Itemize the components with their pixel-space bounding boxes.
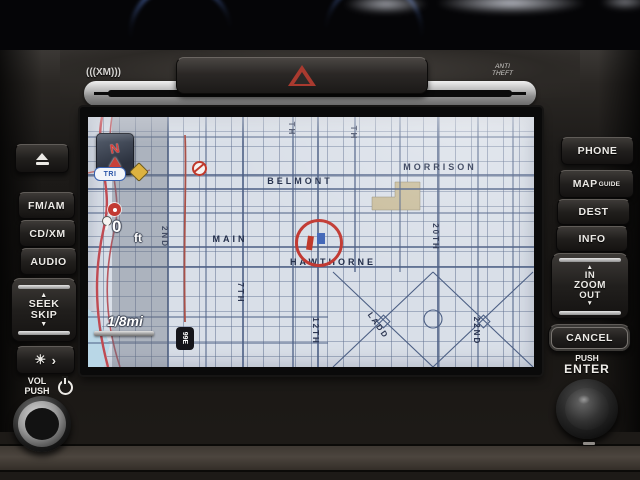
street-label-22nd: 22ND [472, 317, 481, 345]
sun-icon: ☀ [35, 352, 47, 368]
car-dashboard: (((XM))) ANTI THEFT FM/AM CD/XM AUDIO ▲ … [0, 0, 640, 480]
street-label-morrison: MORRISON [403, 162, 477, 172]
cancel-button[interactable]: CANCEL [548, 324, 631, 352]
phone-button[interactable]: PHONE [561, 137, 634, 165]
zoom-in-out-button[interactable]: ▲ IN ZOOM OUT ▼ [551, 253, 629, 319]
dashboard-trim-strip [0, 444, 640, 472]
brightness-button[interactable]: ☀ › [16, 346, 75, 374]
distance-unit: ft [134, 231, 142, 245]
anti-theft-line2: THEFT [492, 70, 513, 77]
nav-head-unit: (((XM))) ANTI THEFT FM/AM CD/XM AUDIO ▲ … [0, 50, 640, 432]
cd-xm-button[interactable]: CD/XM [19, 220, 76, 247]
compass-arrow-icon [109, 157, 121, 167]
restriction-icon [192, 161, 207, 176]
hazard-button[interactable] [176, 57, 428, 94]
street-label-20th: 20TH [431, 223, 440, 251]
highway-shield-label: 99E [181, 332, 188, 345]
map-cursor [295, 219, 343, 267]
audio-button[interactable]: AUDIO [20, 248, 77, 275]
map-scale-bar [94, 331, 154, 336]
cluster-clock-glow [436, 0, 586, 14]
fm-am-button[interactable]: FM/AM [18, 192, 75, 219]
map-scale-label: 1/8mi [92, 313, 158, 329]
hazard-triangle-icon [288, 65, 316, 86]
enter-joystick-knob[interactable] [556, 379, 618, 439]
push-enter-label: PUSH ENTER [552, 354, 622, 375]
eject-icon [36, 153, 48, 160]
compass-north-label: N [109, 141, 121, 155]
transit-badge: TRI [94, 167, 126, 181]
street-label-12th: 12TH [311, 317, 320, 345]
gauge-arc-left [126, 0, 231, 38]
seek-skip-button[interactable]: ▲ SEEK SKIP ▼ [11, 278, 77, 342]
zoom-out-arrow-icon: ▼ [587, 301, 594, 308]
dest-button[interactable]: DEST [557, 199, 630, 225]
street-label-belmont: BELMONT [267, 176, 333, 186]
street-label-partial-2: TH [349, 126, 358, 141]
dim-chevron-icon: › [52, 353, 57, 368]
xm-radio-logo: (((XM))) [86, 67, 121, 78]
street-label-7th: 7TH [236, 282, 245, 303]
cursor-flag-red [306, 236, 314, 251]
cluster-glow [344, 0, 428, 14]
distance-value: 0 [112, 217, 121, 237]
nav-map-display: 99E BELMONT MORRISON MAIN HAWTHORNE 2ND … [88, 117, 534, 367]
cursor-flag-blue [317, 233, 325, 244]
instrument-cluster-glow [0, 0, 640, 52]
street-label-main: MAIN [213, 234, 248, 244]
eject-button[interactable] [15, 144, 69, 173]
seek-down-arrow-icon: ▼ [40, 321, 47, 328]
street-label-partial-1: TH [287, 122, 296, 137]
cluster-glow-right [600, 0, 640, 10]
volume-label: VOL PUSH [16, 377, 58, 396]
anti-theft-line1: ANTI [495, 63, 510, 70]
power-icon [58, 380, 73, 395]
dashboard-lower-trim [0, 432, 640, 480]
enter-knob-notch [583, 442, 595, 445]
poi-location-icon [108, 203, 121, 216]
map-guide-button[interactable]: MAP GUIDE [559, 170, 634, 198]
info-button[interactable]: INFO [556, 226, 628, 252]
poi-pin-icon [102, 216, 112, 226]
volume-knob[interactable] [13, 396, 71, 452]
anti-theft-label: ANTI THEFT [492, 63, 513, 77]
